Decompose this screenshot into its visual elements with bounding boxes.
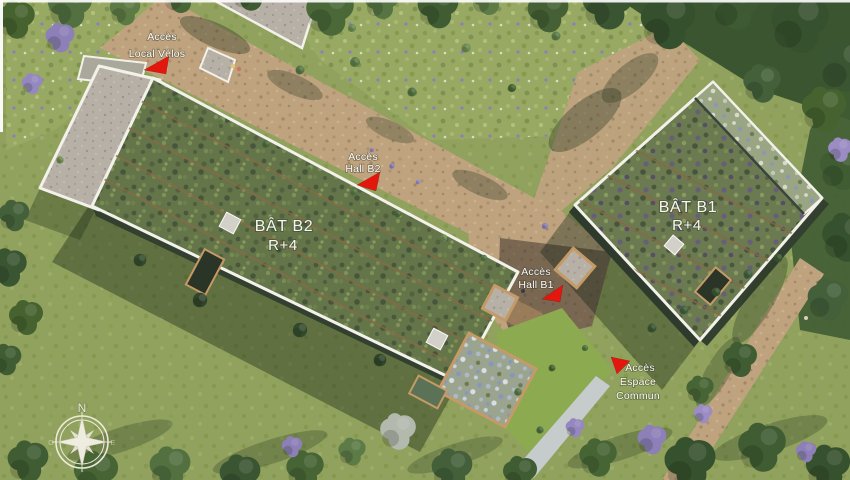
shrub	[582, 345, 588, 351]
shrub	[514, 388, 522, 396]
shrub	[348, 24, 356, 32]
flower-bush	[542, 223, 548, 229]
shrub	[307, 165, 313, 171]
hedge	[648, 324, 657, 333]
shrub	[395, 211, 401, 217]
building-floors: R+4	[268, 237, 298, 254]
shrub	[56, 156, 63, 163]
building-name: BÂT B1	[659, 197, 717, 216]
aerial-site-plan: BÂT B2 R+4 BÂT B1 R+4 Accès Local Vélos …	[0, 0, 850, 480]
marker-label: Hall B1	[518, 279, 553, 291]
shrub	[508, 84, 516, 92]
marker-label: Accès	[521, 266, 551, 278]
shrub	[549, 365, 556, 372]
marker-label: Local Vélos	[129, 48, 185, 60]
marker-label: Commun	[616, 390, 660, 402]
hedge	[680, 306, 689, 315]
left-border	[0, 0, 3, 132]
marker-label: Hall B2	[345, 163, 380, 175]
shrub	[462, 44, 471, 53]
hedge	[774, 254, 783, 263]
compass-east-label: E	[111, 440, 116, 447]
compass-west-label: O	[48, 440, 54, 447]
shrub	[174, 94, 182, 102]
top-border	[0, 0, 850, 3]
shrub	[193, 293, 207, 307]
marker-label: Accès	[147, 31, 177, 43]
flower-bush	[416, 180, 421, 185]
building-floors: R+4	[672, 217, 702, 234]
compass-north-label: N	[78, 401, 87, 415]
shrub	[552, 32, 561, 41]
hedge	[744, 270, 753, 279]
building-name: BÂT B2	[255, 216, 313, 235]
marker-label: Accès	[625, 362, 655, 374]
flower-bush	[389, 163, 394, 168]
compass-center	[80, 440, 84, 444]
marker-label: Accès	[348, 151, 378, 163]
shrub	[262, 140, 270, 148]
shrub	[481, 255, 487, 261]
shrub	[440, 234, 447, 241]
shrub	[134, 254, 147, 267]
shrub	[536, 426, 543, 433]
marker-label: Espace	[620, 376, 656, 388]
site-plan-rendering: BÂT B2 R+4 BÂT B1 R+4 Accès Local Vélos …	[0, 0, 850, 480]
shrub	[408, 88, 417, 97]
shrub	[293, 323, 307, 337]
shrub	[350, 188, 357, 195]
shrub	[374, 354, 387, 367]
hedge	[712, 288, 721, 297]
shrub	[219, 117, 226, 124]
shrub	[296, 66, 305, 75]
shrub	[350, 57, 360, 67]
person-figure	[804, 316, 808, 320]
